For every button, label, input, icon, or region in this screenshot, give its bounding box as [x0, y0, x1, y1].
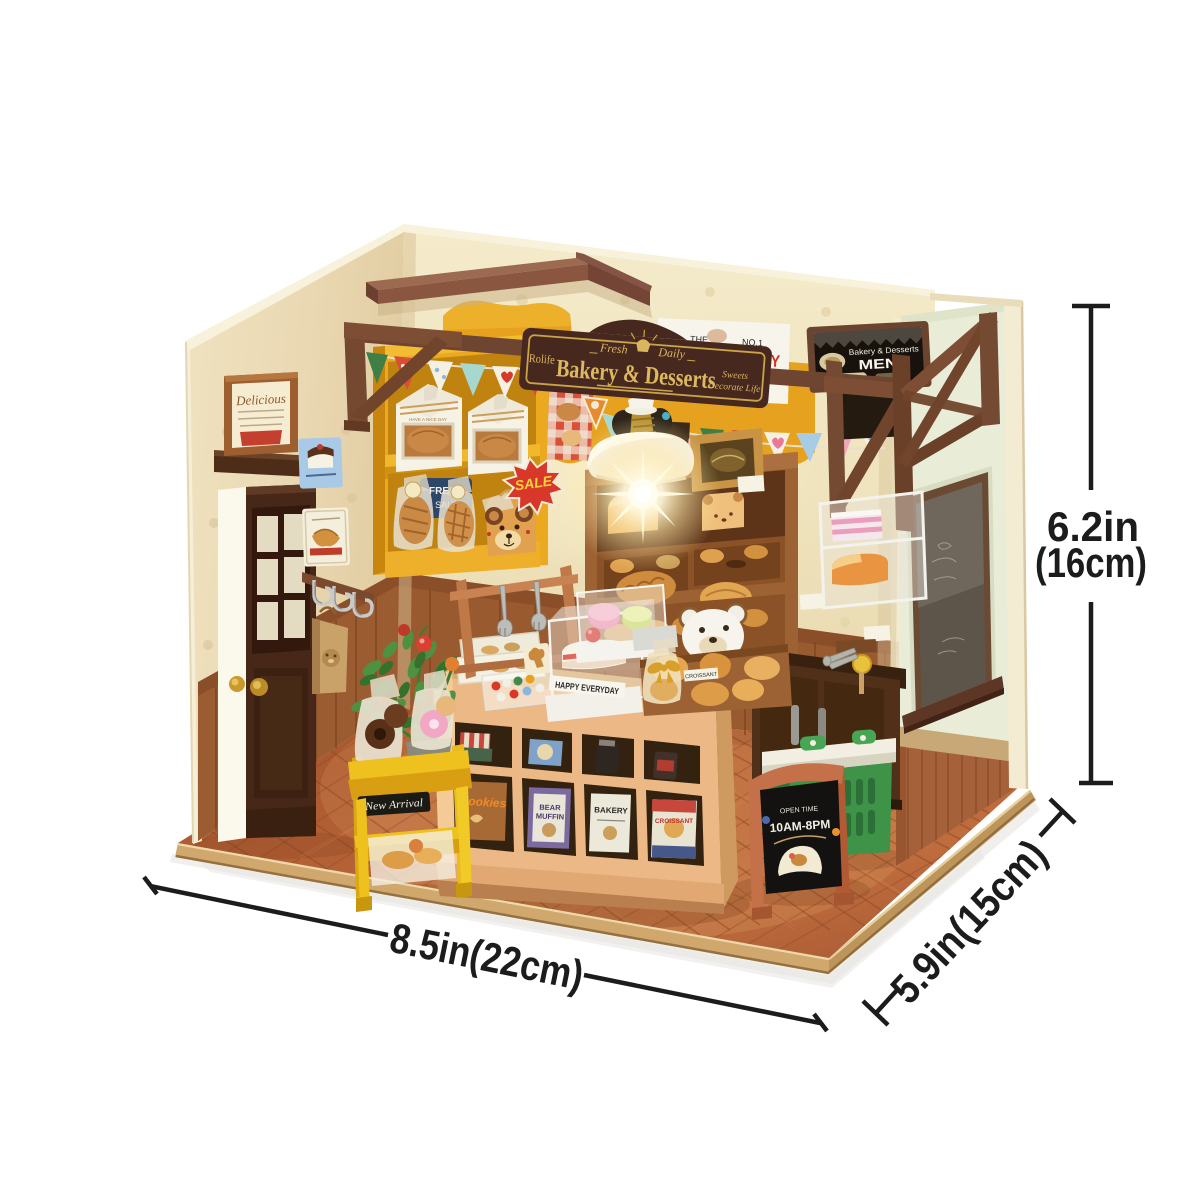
svg-text:Fresh: Fresh [599, 340, 629, 356]
svg-text:Sweets: Sweets [722, 370, 749, 382]
svg-text:HAVE A NICE DAY: HAVE A NICE DAY [409, 417, 447, 422]
svg-text:CROISSANT: CROISSANT [655, 818, 693, 825]
svg-text:MUFFIN: MUFFIN [536, 812, 565, 822]
svg-text:Delicious: Delicious [235, 391, 287, 409]
svg-text:BAKERY: BAKERY [594, 805, 628, 815]
svg-text:(16cm): (16cm) [1035, 539, 1147, 586]
svg-text:Daily: Daily [657, 345, 686, 361]
svg-text:Rolife: Rolife [528, 351, 555, 367]
